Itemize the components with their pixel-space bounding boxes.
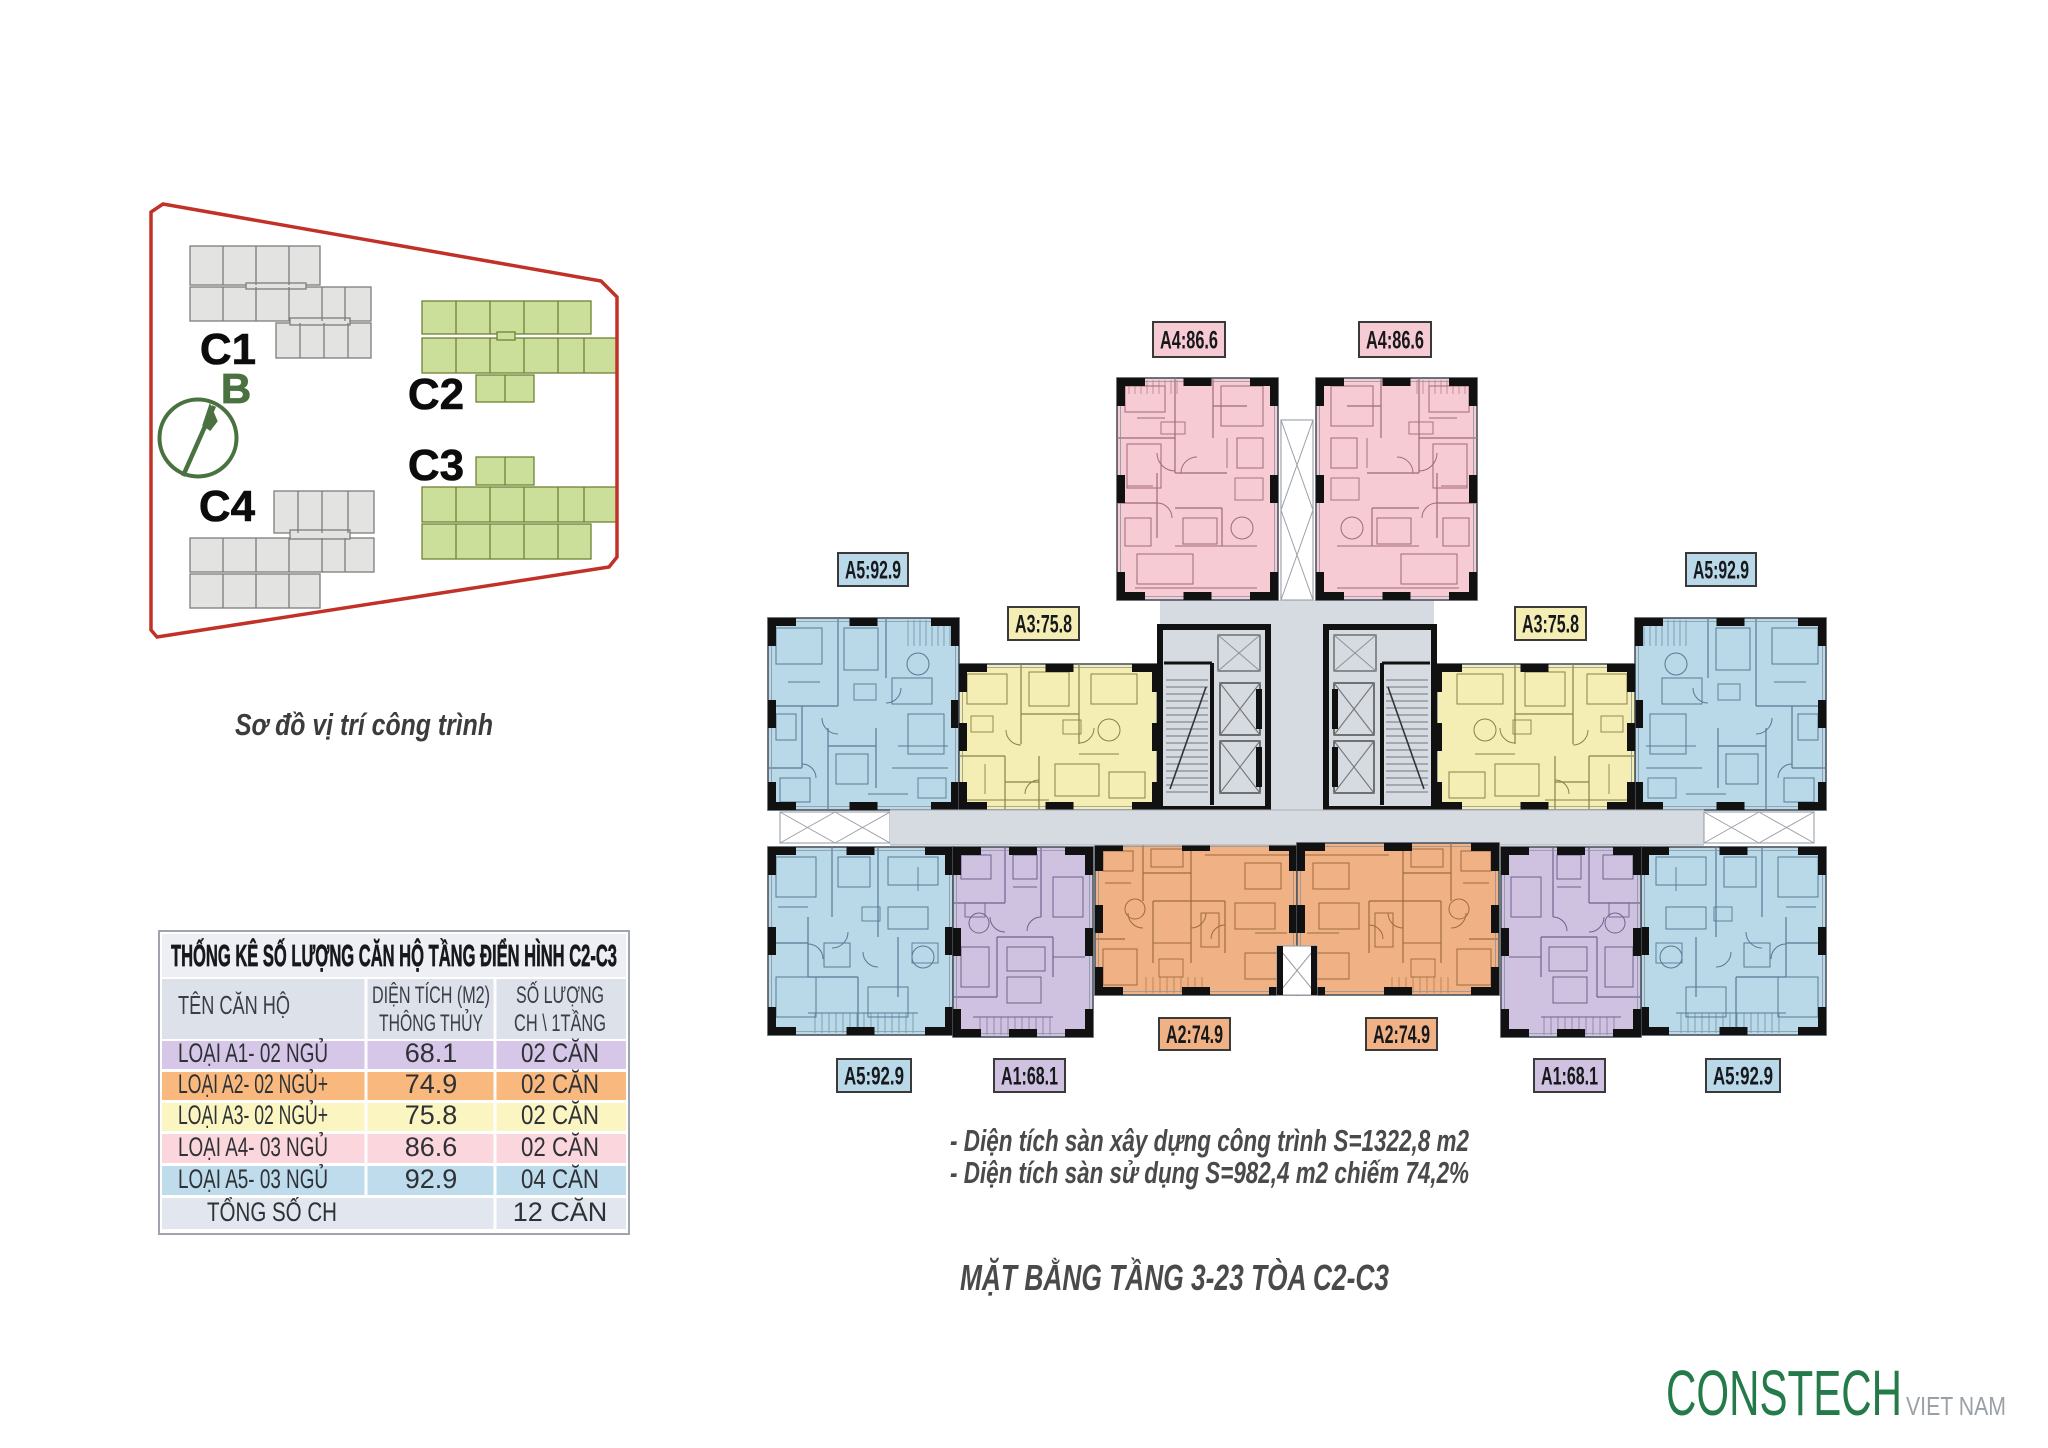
svg-text:LOẠI A2- 02 NGỦ+: LOẠI A2- 02 NGỦ+ (178, 1067, 328, 1099)
svg-text:TỔNG SỐ CH: TỔNG SỐ CH (207, 1195, 337, 1227)
svg-text:02 CĂN: 02 CĂN (521, 1100, 599, 1130)
svg-text:LOẠI A3- 02 NGỦ+: LOẠI A3- 02 NGỦ+ (178, 1098, 328, 1130)
svg-text:92.9: 92.9 (405, 1164, 458, 1194)
svg-text:CH \ 1TẦNG: CH \ 1TẦNG (514, 1009, 606, 1037)
svg-text:A2:74.9: A2:74.9 (1166, 1021, 1223, 1049)
svg-text:VIET NAM: VIET NAM (1906, 1391, 2006, 1421)
svg-text:THỐNG KÊ SỐ LƯỢNG CĂN HỘ TẦNG: THỐNG KÊ SỐ LƯỢNG CĂN HỘ TẦNG ĐIỂN HÌNH … (171, 937, 617, 973)
svg-text:A5:92.9: A5:92.9 (844, 1063, 904, 1091)
svg-text:TÊN CĂN HỘ: TÊN CĂN HỘ (178, 990, 290, 1020)
svg-text:A5:92.9: A5:92.9 (1693, 557, 1749, 585)
svg-text:LOẠI A4- 03 NGỦ: LOẠI A4- 03 NGỦ (178, 1130, 328, 1162)
svg-text:74.9: 74.9 (405, 1069, 458, 1099)
svg-text:DIỆN TÍCH (M2): DIỆN TÍCH (M2) (372, 982, 490, 1009)
svg-text:02 CĂN: 02 CĂN (521, 1132, 599, 1162)
svg-text:02 CĂN: 02 CĂN (521, 1038, 599, 1068)
svg-text:- Diện tích sàn sử dụng S=982,: - Diện tích sàn sử dụng S=982,4 m2 chiếm… (950, 1155, 1469, 1190)
svg-text:- Diện tích sàn xây dựng công: - Diện tích sàn xây dựng công trình S=13… (950, 1123, 1469, 1158)
svg-text:68.1: 68.1 (405, 1038, 458, 1068)
svg-text:C2: C2 (408, 370, 464, 419)
svg-text:LOẠI A5- 03 NGỦ: LOẠI A5- 03 NGỦ (178, 1162, 328, 1194)
svg-text:LOẠI A1- 02 NGỦ: LOẠI A1- 02 NGỦ (178, 1036, 328, 1068)
svg-text:C3: C3 (408, 441, 464, 490)
svg-text:C4: C4 (199, 482, 256, 531)
svg-text:A4:86.6: A4:86.6 (1160, 327, 1218, 355)
svg-text:A5:92.9: A5:92.9 (1713, 1063, 1773, 1091)
svg-text:02 CĂN: 02 CĂN (521, 1069, 599, 1099)
svg-text:86.6: 86.6 (405, 1132, 458, 1162)
svg-text:MẶT BẰNG TẦNG 3-23 TÒA C2-C3: MẶT BẰNG TẦNG 3-23 TÒA C2-C3 (960, 1257, 1389, 1298)
svg-text:SỐ LƯỢNG: SỐ LƯỢNG (516, 981, 604, 1009)
svg-text:A3:75.8: A3:75.8 (1015, 611, 1072, 639)
svg-text:A3:75.8: A3:75.8 (1522, 611, 1579, 639)
svg-text:THÔNG THỦY: THÔNG THỦY (379, 1008, 483, 1037)
svg-text:12 CĂN: 12 CĂN (513, 1197, 608, 1227)
svg-text:A4:86.6: A4:86.6 (1366, 327, 1424, 355)
svg-text:75.8: 75.8 (405, 1100, 458, 1130)
svg-text:CONSTECH: CONSTECH (1666, 1357, 1902, 1429)
svg-text:04 CĂN: 04 CĂN (521, 1164, 599, 1194)
svg-text:A2:74.9: A2:74.9 (1373, 1021, 1430, 1049)
svg-text:A1:68.1: A1:68.1 (1541, 1063, 1598, 1091)
svg-text:A5:92.9: A5:92.9 (845, 557, 901, 585)
svg-text:A1:68.1: A1:68.1 (1001, 1063, 1058, 1091)
svg-text:Sơ đồ vị trí công trình: Sơ đồ vị trí công trình (235, 707, 493, 742)
svg-text:B: B (221, 365, 251, 412)
